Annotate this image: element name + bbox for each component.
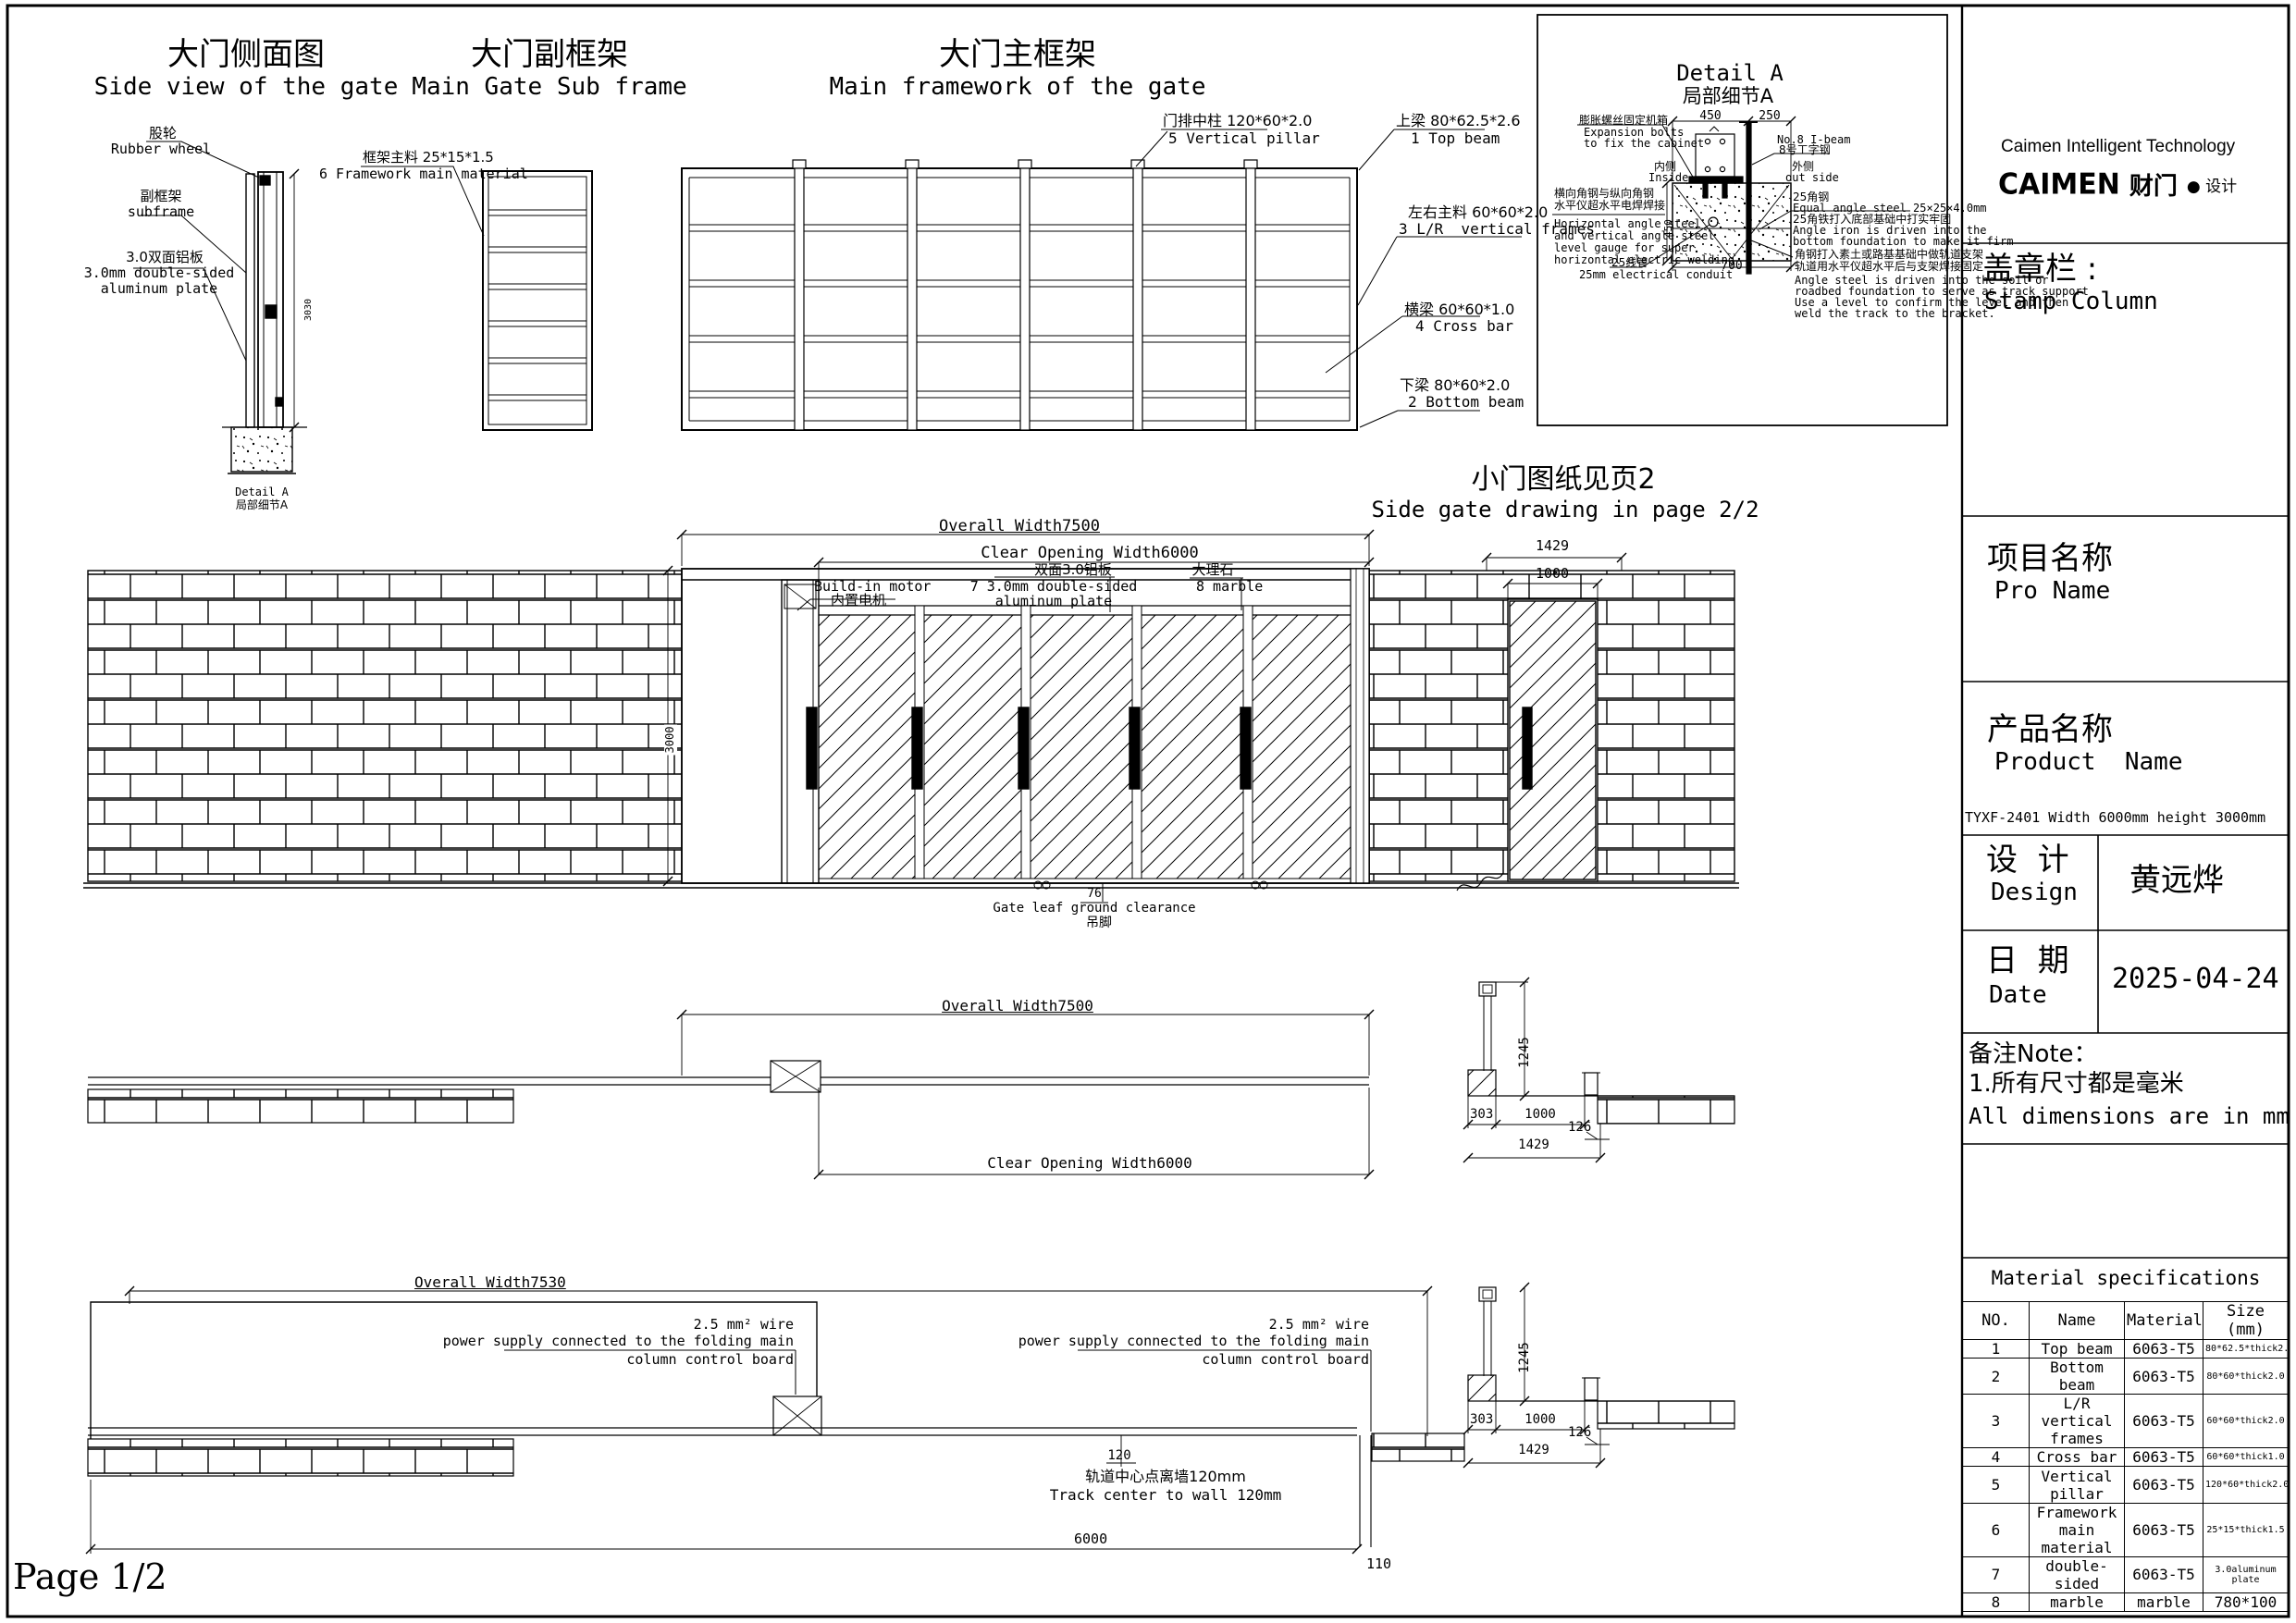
track-dim-1245: 1245 xyxy=(1517,1037,1532,1068)
track-dim-1429: 1429 xyxy=(1518,1137,1549,1152)
cross-bar-callout-en: 4 Cross bar xyxy=(1415,318,1513,335)
table-cell: 6063-T5 xyxy=(2125,1503,2203,1556)
designer-name: 黄远烨 xyxy=(2129,863,2224,899)
framework-material-callout-en: 6 Framework main material xyxy=(319,166,528,182)
logo-design-text: ● 设计 xyxy=(2187,173,2237,196)
company-name: Caimen Intelligent Technology xyxy=(2001,137,2235,157)
table-cell: marble xyxy=(2030,1592,2125,1611)
table-row: 4Cross bar6063-T560*60*thick1.0 xyxy=(1963,1448,2289,1467)
material-table: NO.NameMaterialSize (mm)1Top beam6063-T5… xyxy=(1962,1301,2289,1612)
table-header-cell: Material xyxy=(2125,1302,2203,1340)
track-support-cn2: 轨道用水平仪超水平后与支架焊接固定 xyxy=(1795,261,1983,274)
lr-frames-callout-cn: 左右主料 60*60*2.0 xyxy=(1408,204,1548,221)
table-cell: 60*60*thick1.0 xyxy=(2203,1448,2289,1467)
note-title: 备注Note： xyxy=(1969,1041,2098,1069)
clearance-label-en: Gate leaf ground clearance xyxy=(993,901,1195,916)
small-gate-dim-1429: 1429 xyxy=(1536,538,1569,554)
inside-label-en: Inside xyxy=(1648,172,1688,185)
product-name-cn: 产品名称 xyxy=(1987,712,2113,748)
table-cell: 8 xyxy=(1963,1592,2030,1611)
side-view-detail-ref-en: Detail A xyxy=(235,486,289,499)
page-number: Page 1/2 xyxy=(13,1557,167,1598)
plan-dim-1245: 1245 xyxy=(1517,1342,1532,1373)
pillar-callout-en: 5 Vertical pillar xyxy=(1168,130,1320,147)
elevation-overall-width: Overall Width7500 xyxy=(939,518,1100,536)
track-dim-126: 126 xyxy=(1568,1120,1591,1135)
table-cell: 1 xyxy=(1963,1340,2030,1359)
project-name-en: Pro Name xyxy=(1994,578,2110,606)
table-cell: 25*15*thick1.5 xyxy=(2203,1503,2289,1556)
product-name-en: Product Name xyxy=(1994,749,2183,777)
elevation-alum-cn: 双面3.0铝板 xyxy=(1034,562,1112,578)
table-header-cell: NO. xyxy=(1963,1302,2030,1340)
pillar-callout-cn: 门排中柱 120*60*2.0 xyxy=(1163,113,1312,129)
outside-label-en: out side xyxy=(1785,172,1839,185)
detail-dim-450v: 450 xyxy=(1663,219,1675,238)
detail-dim-450: 450 xyxy=(1699,110,1721,124)
plan-overall-width: Overall Width7530 xyxy=(414,1274,566,1291)
plan-dim-126: 126 xyxy=(1568,1425,1591,1440)
side-gate-note-cn: 小门图纸见页2 xyxy=(1471,464,1655,497)
sub-frame-drawing xyxy=(361,166,592,430)
small-gate-dim-1000: 1000 xyxy=(1536,566,1569,582)
aluminum-plate-label-en2: aluminum plate xyxy=(101,281,217,297)
track-dim-303: 303 xyxy=(1470,1107,1493,1122)
table-cell: 6 xyxy=(1963,1503,2030,1556)
top-beam-callout-cn: 上梁 80*62.5*2.6 xyxy=(1396,113,1521,129)
elevation-alum-en2: aluminum plate xyxy=(995,594,1112,609)
side-view-detail-ref-cn: 局部细节A xyxy=(236,499,288,512)
clearance-dim-76: 76 xyxy=(1087,888,1102,902)
table-cell: 7 xyxy=(1963,1556,2030,1592)
gate-height-dim-3000: 3000 xyxy=(664,725,677,756)
table-row: 8marblemarble780*100 xyxy=(1963,1592,2289,1611)
table-cell: 2 xyxy=(1963,1359,2030,1395)
table-cell: marble xyxy=(2125,1592,2203,1611)
table-cell: 120*60*thick2.0 xyxy=(2203,1467,2289,1503)
side-view-title-en: Side view of the gate xyxy=(94,74,399,102)
conduit-label-en: 25mm electrical conduit xyxy=(1579,269,1733,282)
track-support-en4: weld the track to the bracket. xyxy=(1795,308,1995,321)
table-cell: Bottom beam xyxy=(2030,1359,2125,1395)
table-row: 7double-sided6063-T53.0aluminum plate xyxy=(1963,1556,2289,1592)
table-cell: Cross bar xyxy=(2030,1448,2125,1467)
sub-frame-title-cn: 大门副框架 xyxy=(471,37,628,73)
plan-track-note-cn: 轨道中心点离墙120mm xyxy=(1085,1469,1246,1485)
table-cell: 80*62.5*thick2.6 xyxy=(2203,1340,2289,1359)
cross-bar-callout-cn: 横梁 60*60*1.0 xyxy=(1404,301,1514,318)
plan-dim-6000: 6000 xyxy=(1074,1531,1107,1547)
clearance-label-cn: 吊脚 xyxy=(1086,916,1112,930)
track-dim-1000: 1000 xyxy=(1524,1107,1556,1122)
detail-a-title-cn: 局部细节A xyxy=(1683,85,1773,107)
material-table-body: NO.NameMaterialSize (mm)1Top beam6063-T5… xyxy=(1963,1302,2289,1612)
stamp-column-en: Stamp Column xyxy=(1984,289,2158,316)
table-cell: 6063-T5 xyxy=(2125,1340,2203,1359)
table-row: 5Vertical pillar6063-T5120*60*thick2.0 xyxy=(1963,1467,2289,1503)
framework-material-callout-cn: 框架主料 25*15*1.5 xyxy=(363,150,494,166)
wire-note-left-l3: column control board xyxy=(626,1352,794,1368)
side-gate-note-en: Side gate drawing in page 2/2 xyxy=(1371,498,1759,523)
table-cell: 60*60*thick2.0 xyxy=(2203,1395,2289,1448)
date-label-en: Date xyxy=(1989,982,2047,1010)
main-frame-title-en: Main framework of the gate xyxy=(830,74,1206,102)
table-row: 3L/R vertical frames6063-T560*60*thick2.… xyxy=(1963,1395,2289,1448)
table-cell: 3 xyxy=(1963,1395,2030,1448)
table-cell: 5 xyxy=(1963,1467,2030,1503)
plan-dim-303: 303 xyxy=(1470,1412,1493,1427)
subframe-label-cn: 副框架 xyxy=(140,189,181,204)
marble-label-en: 8 marble xyxy=(1196,579,1263,595)
design-label-cn: 设 计 xyxy=(1986,842,2069,879)
note-line-1: 1.所有尺寸都是毫米 xyxy=(1969,1071,2184,1099)
table-cell: 6063-T5 xyxy=(2125,1467,2203,1503)
table-cell: Framework main material xyxy=(2030,1503,2125,1556)
sub-frame-title-en: Main Gate Sub frame xyxy=(412,74,686,102)
wire-note-right-l2: power supply connected to the folding ma… xyxy=(1018,1334,1369,1349)
expansion-bolts-en2: to fix the cabinet xyxy=(1584,138,1704,151)
track-view-drawing xyxy=(88,977,1734,1179)
design-label-en: Design xyxy=(1991,879,2078,907)
ibeam-label-cn: 8号工字钢 xyxy=(1779,144,1831,157)
angle-iron-en2: bottom foundation to make it firm xyxy=(1793,236,2013,249)
main-framework-drawing xyxy=(682,129,1522,430)
table-cell: 780*100 xyxy=(2203,1592,2289,1611)
table-row: 1Top beam6063-T580*62.5*thick2.6 xyxy=(1963,1340,2289,1359)
date-value: 2025-04-24 xyxy=(2112,964,2279,996)
rubber-wheel-label-en: Rubber wheel xyxy=(111,141,211,157)
detail-dim-700: 700 xyxy=(1721,260,1742,274)
logo-cn-text: 财门 xyxy=(2129,167,2178,202)
table-row: 6Framework main material6063-T525*15*thi… xyxy=(1963,1503,2289,1556)
table-cell: 6063-T5 xyxy=(2125,1556,2203,1592)
table-cell: double-sided xyxy=(2030,1556,2125,1592)
plan-track-note-en: Track center to wall 120mm xyxy=(1050,1487,1281,1504)
stamp-column-cn: 盖章栏 : xyxy=(1982,252,2097,288)
motor-label-cn: 内置电机 xyxy=(831,593,886,609)
table-cell: 3.0aluminum plate xyxy=(2203,1556,2289,1592)
table-cell: 80*60*thick2.0 xyxy=(2203,1359,2289,1395)
side-view-height-dim: 3030 xyxy=(303,299,315,321)
project-name-cn: 项目名称 xyxy=(1987,541,2113,577)
table-cell: L/R vertical frames xyxy=(2030,1395,2125,1448)
plan-dim-110: 110 xyxy=(1366,1556,1391,1572)
elevation-clear-opening: Clear Opening Width6000 xyxy=(981,545,1198,563)
table-header-cell: Name xyxy=(2030,1302,2125,1340)
note-line-2: All dimensions are in mm xyxy=(1969,1104,2290,1130)
bottom-beam-callout-cn: 下梁 80*60*2.0 xyxy=(1400,377,1510,394)
table-header-cell: Size (mm) xyxy=(2203,1302,2289,1340)
left-note-cn2: 水平仪超水平电焊焊接 xyxy=(1554,200,1665,213)
table-cell: Top beam xyxy=(2030,1340,2125,1359)
product-spec: TYXF-2401 Width 6000mm height 3000mm xyxy=(1965,810,2265,826)
wire-note-right-l3: column control board xyxy=(1202,1352,1369,1368)
table-cell: Vertical pillar xyxy=(2030,1467,2125,1503)
logo-wordmark: CAIMEN xyxy=(1998,167,2120,202)
detail-a-title-en: Detail A xyxy=(1676,61,1784,87)
table-cell: 6063-T5 xyxy=(2125,1395,2203,1448)
marble-label-cn: 大理石 xyxy=(1191,562,1233,578)
wire-note-left-l1: 2.5 mm² wire xyxy=(694,1317,794,1333)
plan-dim-1429: 1429 xyxy=(1518,1443,1549,1457)
top-beam-callout-en: 1 Top beam xyxy=(1411,130,1500,147)
wire-note-left-l2: power supply connected to the folding ma… xyxy=(443,1334,794,1349)
table-row: 2Bottom beam6063-T580*60*thick2.0 xyxy=(1963,1359,2289,1395)
company-logo: CAIMEN 财门 ● 设计 xyxy=(1998,167,2237,202)
aluminum-plate-label-cn: 3.0双面铝板 xyxy=(126,250,204,265)
drawing-sheet: 大门侧面图 Side view of the gate 大门副框架 Main G… xyxy=(0,0,2296,1623)
track-view-clear-opening: Clear Opening Width6000 xyxy=(987,1155,1192,1172)
track-view-overall-width: Overall Width7500 xyxy=(942,998,1093,1014)
table-header-row: NO.NameMaterialSize (mm) xyxy=(1963,1302,2289,1340)
detail-dim-250: 250 xyxy=(1759,110,1780,124)
table-cell: 6063-T5 xyxy=(2125,1448,2203,1467)
date-label-cn: 日 期 xyxy=(1986,943,2069,979)
side-view-title-cn: 大门侧面图 xyxy=(167,37,325,73)
bottom-beam-callout-en: 2 Bottom beam xyxy=(1408,394,1524,411)
plan-dim-120: 120 xyxy=(1107,1448,1130,1463)
plan-dim-1000: 1000 xyxy=(1524,1412,1556,1427)
material-table-title: Material specifications xyxy=(1992,1267,2261,1289)
main-frame-title-cn: 大门主框架 xyxy=(939,37,1096,73)
rubber-wheel-label-cn: 股轮 xyxy=(149,126,177,141)
aluminum-plate-label-en1: 3.0mm double-sided xyxy=(84,265,235,281)
table-cell: 6063-T5 xyxy=(2125,1359,2203,1395)
subframe-label-en: subframe xyxy=(128,204,194,220)
wire-note-right-l1: 2.5 mm² wire xyxy=(1269,1317,1369,1333)
table-cell: 4 xyxy=(1963,1448,2030,1467)
